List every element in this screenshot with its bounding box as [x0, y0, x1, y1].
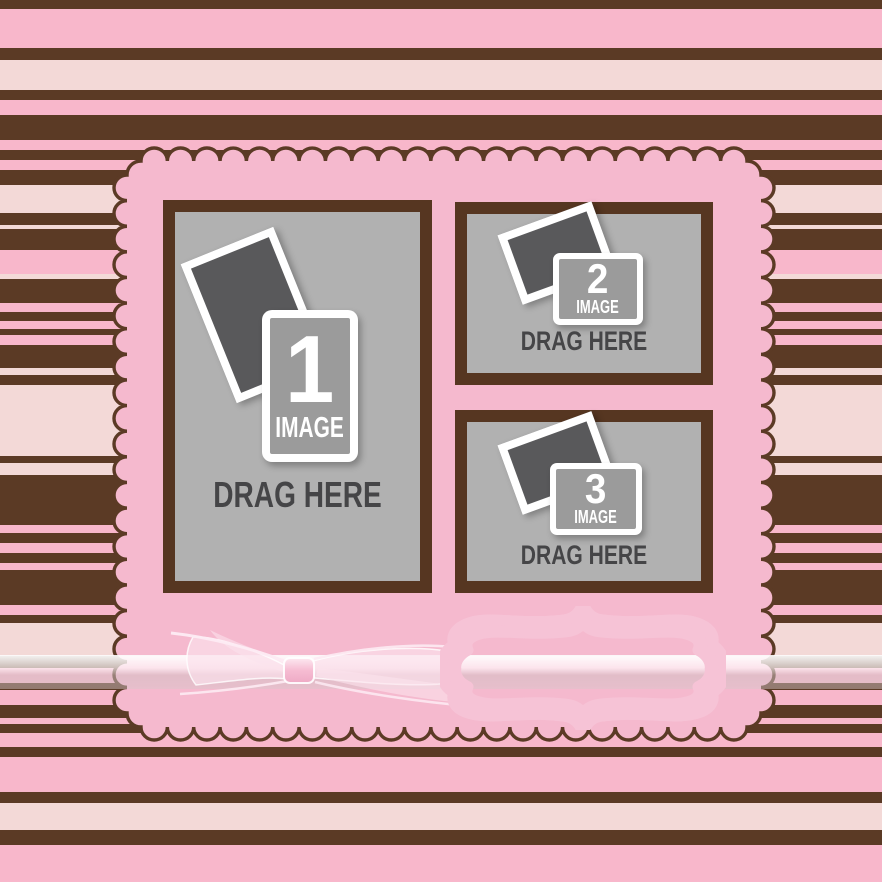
photo-placeholder: 3 IMAGE	[556, 469, 636, 529]
label-plaque[interactable]	[440, 606, 726, 730]
drag-here-label: DRAG HERE	[493, 326, 676, 357]
ribbon-bow-icon	[150, 615, 490, 715]
photo-placeholder: 2 IMAGE	[559, 259, 637, 319]
image-label: IMAGE	[276, 412, 344, 445]
drag-here-label: DRAG HERE	[493, 540, 676, 571]
front-photo-icon: 3 IMAGE	[550, 463, 642, 535]
front-photo-icon: 1 IMAGE	[262, 310, 358, 462]
photo-slot-3[interactable]: 3 IMAGE DRAG HERE	[455, 410, 713, 593]
slot-number: 2	[587, 260, 608, 298]
drag-here-label: DRAG HERE	[202, 474, 393, 516]
slot-number: 3	[585, 470, 606, 508]
front-photo-icon: 2 IMAGE	[553, 253, 643, 325]
photo-placeholder: 1 IMAGE	[270, 318, 350, 454]
photo-slot-1[interactable]: 1 IMAGE DRAG HERE	[163, 200, 432, 593]
image-label: IMAGE	[577, 297, 619, 318]
photo-slot-2[interactable]: 2 IMAGE DRAG HERE	[455, 202, 713, 385]
slot-number: 1	[285, 327, 334, 413]
scrapbook-template-canvas: 1 IMAGE DRAG HERE 2 IMAGE DRAG HERE	[0, 0, 882, 882]
image-label: IMAGE	[575, 507, 617, 528]
